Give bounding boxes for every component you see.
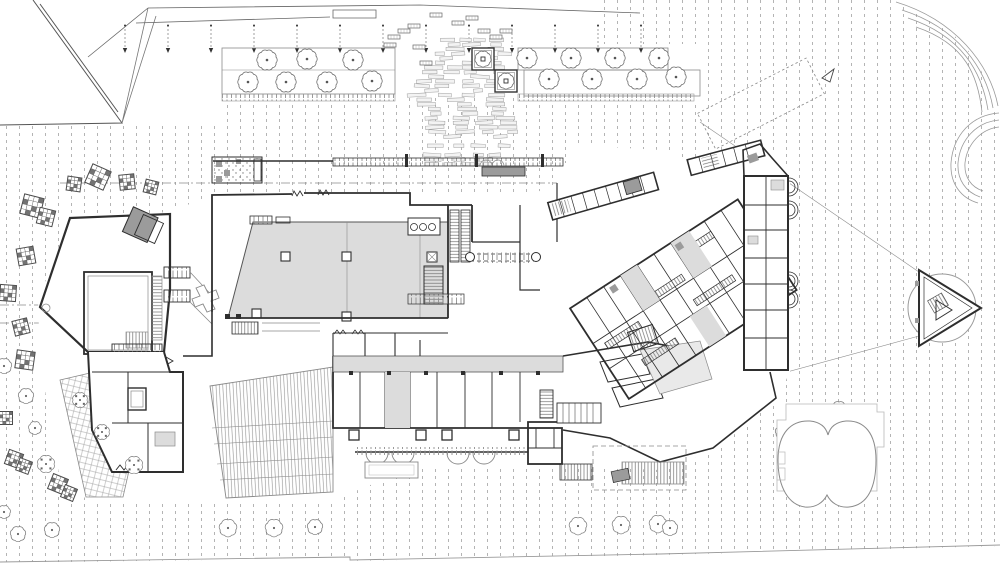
floor-plan-stage [0, 0, 1000, 572]
site-plan-svg [0, 0, 1000, 572]
pool-garden [777, 404, 884, 507]
